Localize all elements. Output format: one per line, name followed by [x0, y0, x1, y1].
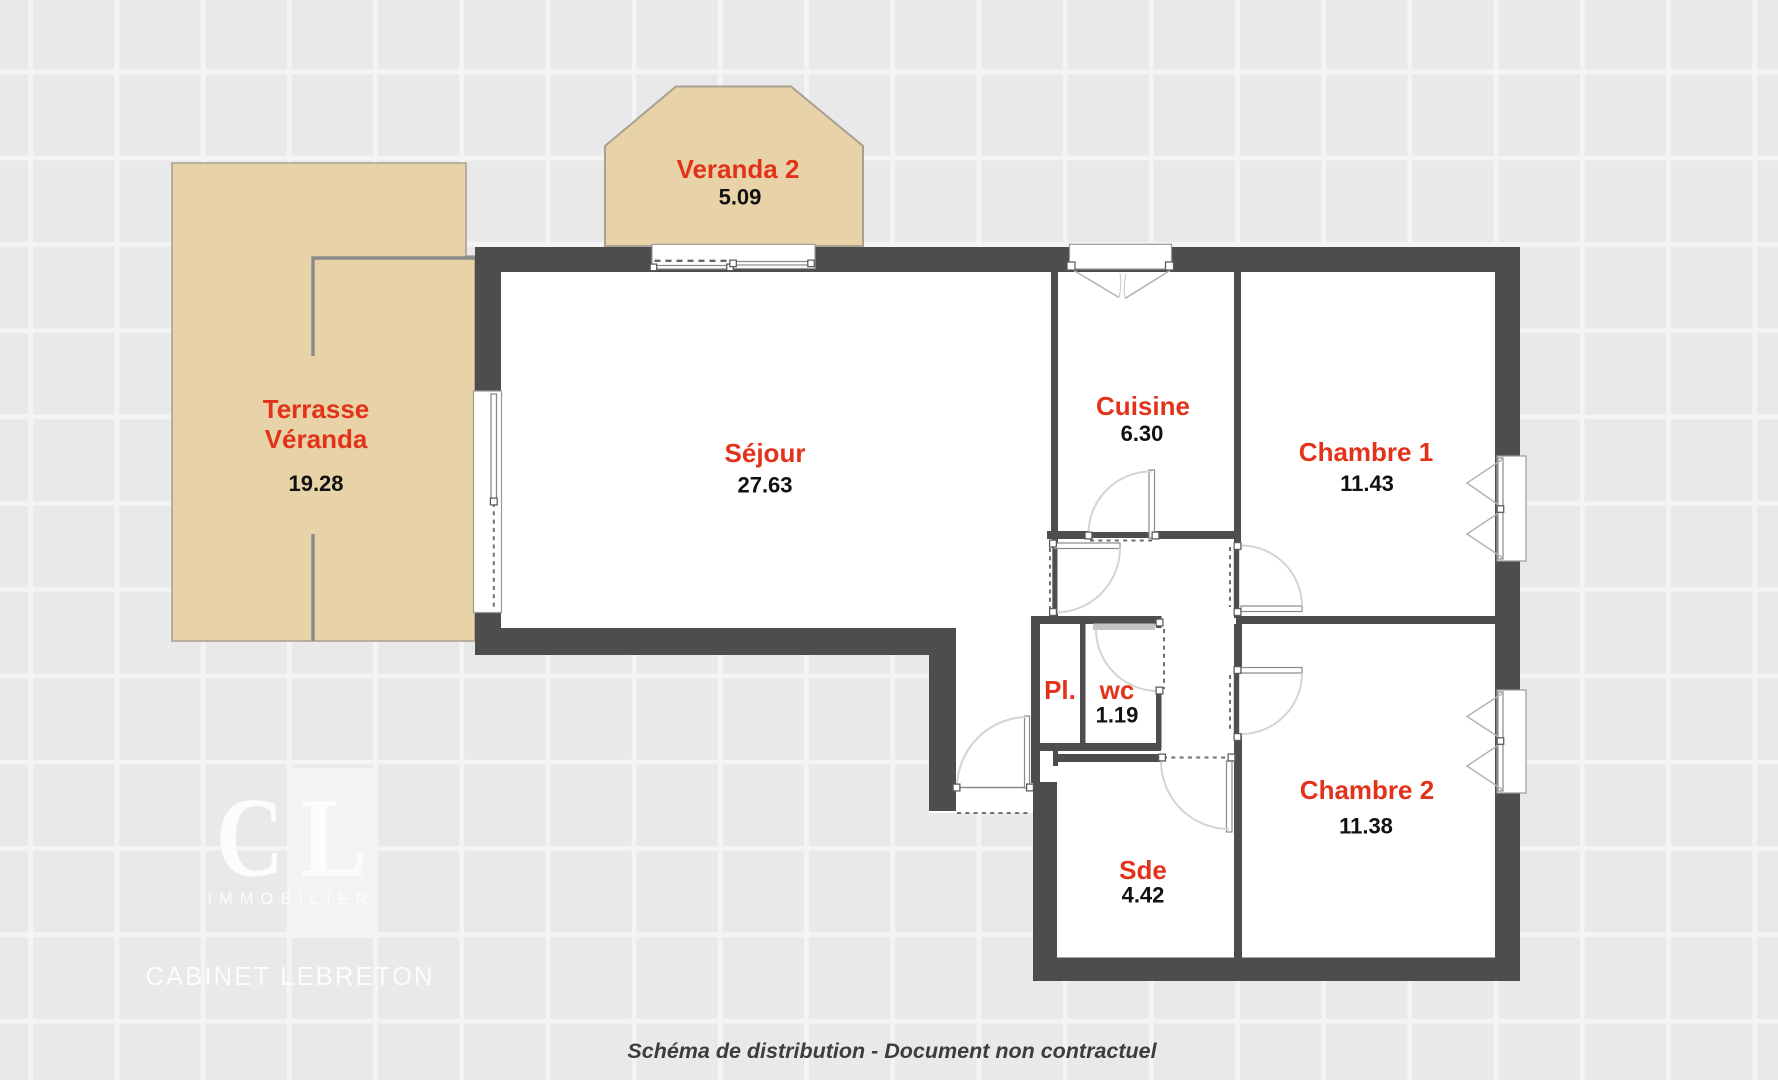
svg-text:4.42: 4.42: [1122, 883, 1165, 908]
svg-text:Chambre 2: Chambre 2: [1300, 775, 1434, 805]
svg-text:wc: wc: [1099, 675, 1135, 705]
svg-text:27.63: 27.63: [737, 473, 792, 498]
svg-text:6.30: 6.30: [1121, 421, 1164, 446]
svg-text:Séjour: Séjour: [725, 438, 806, 468]
svg-text:Sde: Sde: [1119, 855, 1167, 885]
svg-text:Véranda: Véranda: [265, 424, 368, 454]
svg-text:1.19: 1.19: [1096, 703, 1139, 728]
svg-text:L: L: [301, 776, 367, 901]
svg-text:CABINET LEBRETON: CABINET LEBRETON: [145, 963, 434, 991]
svg-text:Chambre 1: Chambre 1: [1299, 437, 1433, 467]
svg-text:C: C: [216, 776, 284, 901]
svg-text:11.43: 11.43: [1340, 471, 1394, 496]
svg-text:Terrasse: Terrasse: [263, 394, 370, 424]
svg-text:19.28: 19.28: [288, 471, 343, 496]
svg-text:IMMOBILIER: IMMOBILIER: [207, 890, 374, 908]
svg-text:Cuisine: Cuisine: [1096, 391, 1190, 421]
svg-text:Schéma de distribution - Docum: Schéma de distribution - Document non co…: [627, 1039, 1157, 1063]
svg-text:11.38: 11.38: [1339, 814, 1393, 839]
svg-text:Veranda 2: Veranda 2: [677, 154, 800, 184]
svg-text:5.09: 5.09: [719, 185, 762, 210]
svg-text:Pl.: Pl.: [1044, 675, 1076, 705]
